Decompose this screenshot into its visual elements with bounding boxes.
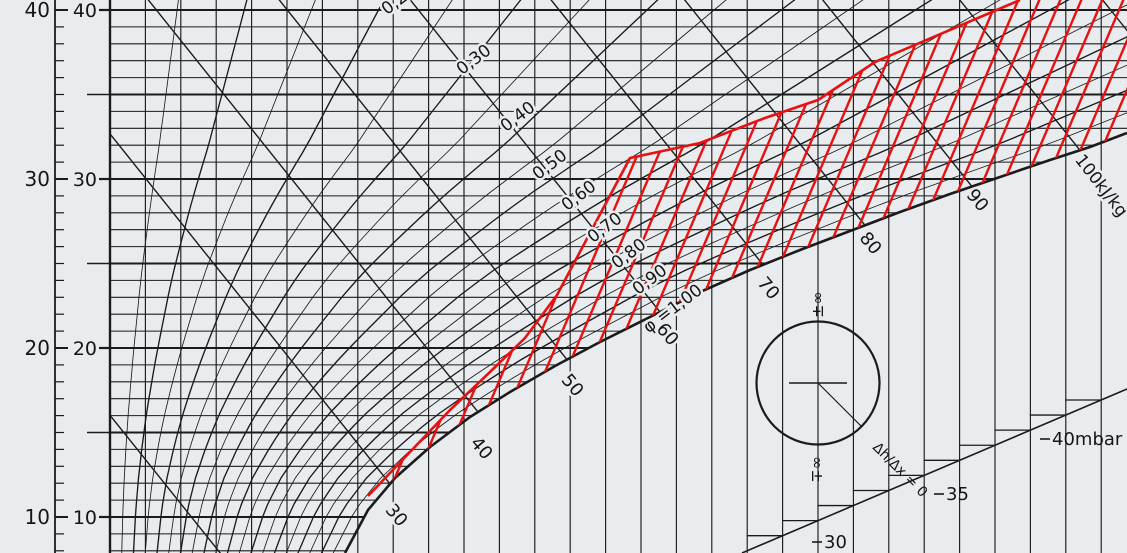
humidity-curve — [320, 0, 1127, 553]
hatch-line — [1053, 0, 1127, 553]
humidity-curve — [168, 0, 454, 553]
hatch-line — [276, 0, 516, 553]
pole-ratio-label: Δh/Δx = 0 — [869, 440, 930, 501]
inner-temp-label: 20 — [73, 338, 97, 360]
enthalpy-label: 70 — [753, 273, 784, 304]
outer-temp-label: 40 — [25, 0, 50, 22]
hatch-line — [717, 0, 957, 553]
hatch-line — [150, 0, 390, 553]
hatch-line — [360, 0, 600, 553]
humidity-curve — [285, 0, 1127, 553]
enthalpy-line — [0, 0, 498, 437]
hatch-line — [969, 0, 1127, 553]
enthalpy-label: 80 — [855, 228, 886, 259]
pressure-label: 40mbar — [1052, 429, 1123, 450]
enthalpy-label: 30 — [381, 500, 412, 531]
pole-bottom-limit-label: ∞± — [808, 456, 827, 483]
humidity-label: 0,40 — [497, 98, 539, 137]
temperature-scales: 4030201040302010 — [25, 0, 110, 553]
outer-temp-label: 20 — [25, 336, 50, 360]
humidity-label: 0,30 — [453, 41, 495, 80]
enthalpy-label: 40 — [466, 433, 497, 464]
hatch-line — [1095, 0, 1127, 553]
pressure-scale-line — [742, 389, 1127, 553]
humidity-curve — [145, 0, 317, 553]
hatch-line — [1074, 0, 1127, 553]
humidity-curve — [332, 0, 1127, 553]
humidity-label: 0,60 — [558, 177, 600, 216]
humidity-curve — [122, 0, 179, 553]
humidity-label: 0,90 — [629, 261, 671, 300]
hatch-line — [1116, 0, 1127, 553]
inner-temp-label: 40 — [73, 0, 97, 22]
vapour-pressure-scale: 303540mbar — [742, 389, 1127, 553]
outer-temp-label: 30 — [25, 167, 50, 191]
humidity-curve — [180, 0, 523, 553]
hatch-line — [213, 0, 453, 553]
enthalpy-label: 50 — [557, 370, 588, 401]
inner-temp-label: 30 — [73, 169, 97, 191]
hatch-line — [906, 0, 1127, 553]
pressure-label: 35 — [946, 484, 969, 505]
humidity-curve — [133, 0, 247, 553]
outer-temp-label: 10 — [25, 505, 50, 529]
hatch-line — [990, 0, 1127, 553]
mollier-diagram: 4030201040302010 303540mbar ±∞∞±Δh/Δx = … — [0, 0, 1127, 553]
hatch-line — [948, 0, 1127, 553]
hatch-line — [318, 0, 558, 553]
curve-labels-layer: 0,200,200,300,300,400,400,500,500,600,60… — [378, 0, 1127, 531]
pole-radius-line — [818, 383, 862, 427]
pressure-label: 30 — [824, 532, 847, 553]
hatch-line — [234, 0, 474, 553]
pole-top-limit-label: ±∞ — [808, 291, 827, 318]
humidity-curve — [157, 0, 386, 553]
humidity-curves-layer — [122, 0, 1127, 553]
enthalpy-unit-label: 100kJ/kg — [1070, 151, 1127, 221]
humidity-curve — [250, 0, 936, 553]
mollier-chart-page: 4030201040302010 303540mbar ±∞∞±Δh/Δx = … — [0, 0, 1127, 553]
inner-temp-label: 10 — [73, 507, 97, 529]
